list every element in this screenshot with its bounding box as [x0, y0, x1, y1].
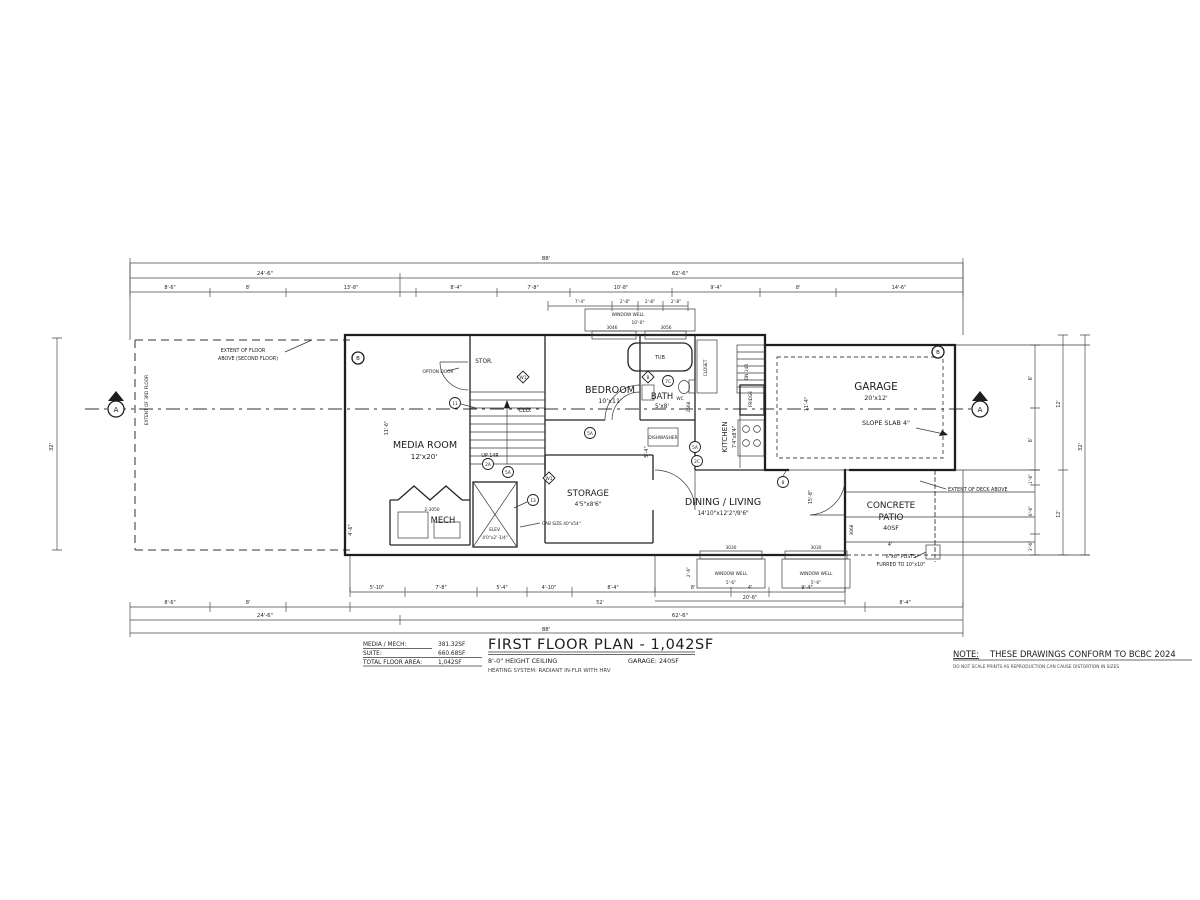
section-marker-a-left: A [114, 405, 119, 414]
dim-right-12a: 12' [1056, 400, 1062, 407]
note-title: NOTE: [953, 649, 979, 659]
dim-top3-4: 7'-8" [527, 285, 538, 291]
dim-top3-2: 13'-8" [344, 285, 358, 291]
stairs-down [737, 345, 765, 393]
label-posts-1: 6"x6" POSTS [886, 554, 917, 560]
area-row3-value: 1,042SF [438, 660, 462, 666]
label-fridge: FRIDGE [748, 391, 754, 407]
keynote-5a-2: 5A [587, 431, 593, 437]
label-win-3030-a: 3030 [726, 545, 737, 551]
label-win-3046: 3046 [607, 325, 618, 331]
dim-top4-1: 2'-8" [620, 299, 630, 305]
room-label-mech: MECH [431, 515, 456, 525]
dim-bot2-0: 8'-6" [164, 600, 175, 606]
label-extent-second-2: ABOVE (SECOND FLOOR) [218, 356, 278, 362]
dim-right-0: 6' [1028, 376, 1034, 380]
dim-bot-left: 24'-6" [257, 613, 273, 619]
room-label-stor: STOR. [475, 359, 493, 365]
room-label-patio-1: CONCRETE [867, 501, 915, 511]
dimension-lines [52, 258, 1090, 637]
area-row1-label: MEDIA / MECH: [363, 642, 407, 648]
dim-d158: 15'-8" [808, 490, 814, 504]
dim-bot1r-0: 8' [691, 585, 695, 591]
room-label-clo: CLO. [518, 408, 531, 414]
dim-top-total: 88' [542, 256, 550, 262]
room-size-storage: 4'5"x8'6" [575, 502, 602, 508]
keynote-8: 8 [782, 480, 785, 486]
label-extent-second-1: EXTENT OF FLOOR [221, 348, 266, 354]
area-row2-value: 660.68SF [438, 651, 465, 657]
label-window-well-b1: WINDOW WELL [715, 571, 748, 577]
room-size-garage: 20'x12' [864, 394, 888, 402]
dim-bot1-1: 7'-8" [435, 585, 446, 591]
dim-right-4: 3'-6" [1028, 541, 1034, 551]
keynote-13: 13 [530, 498, 536, 504]
sheet-subtitle-left: 8'-0" HEIGHT CEILING [488, 657, 557, 665]
dim-window-well-top: 10'-0" [632, 320, 645, 326]
room-label-media: MEDIA ROOM [393, 440, 457, 451]
dim-top4-2: 2'-8" [645, 299, 655, 305]
area-row3-label: TOTAL FLOOR AREA: [362, 660, 422, 666]
dim-top-left: 24'-6" [257, 271, 273, 277]
label-mech-window: 2-3050 [424, 507, 439, 513]
dim-bot1-0: 5'-10" [370, 585, 384, 591]
dim-well-depth: 2'-6" [686, 567, 692, 577]
room-label-storage: STORAGE [567, 489, 609, 499]
keynote-11: 11 [452, 401, 458, 407]
label-closet: CLOSET [703, 359, 709, 376]
patio-elements [285, 340, 948, 559]
dim-bot2-1: 8' [246, 600, 250, 606]
dim-right-total: 32' [1078, 443, 1084, 451]
dim-top3-8: 14'-6" [892, 285, 906, 291]
label-wc: WC [676, 396, 683, 402]
floor-plan-drawing: 88' 24'-6" 62'-6" 8'-6" 8' 13'-8" 8'-4" … [0, 0, 1200, 900]
dim-top3-7: 8' [796, 285, 800, 291]
label-elev-cab: CAB SIZE 40"x54" [542, 521, 581, 527]
area-row2-label: SUITE: [363, 651, 382, 657]
keynote-5a-3: 5A [692, 445, 698, 451]
label-dishwasher: DISHWASHER [648, 435, 677, 441]
dim-bot1r-2: 9'-4" [801, 585, 812, 591]
dim-top3-6: 9'-4" [710, 285, 721, 291]
dim-garage-height: 11'-4" [804, 397, 810, 411]
dim-top3-3: 8'-4" [450, 285, 461, 291]
window-tag-w1-b: W1 [546, 476, 553, 482]
room-label-patio-2: PATIO [879, 513, 904, 523]
window-tag-w1-a: W1 [520, 375, 527, 381]
dim-bot1-3: 4'-10" [542, 585, 556, 591]
dim-d54: 5'-4" [644, 446, 650, 457]
label-door-2668: 2668 [686, 401, 692, 412]
sheet-subtitle-right: GARAGE: 240SF [628, 657, 679, 665]
room-size-patio: 40SF [883, 524, 899, 532]
room-size-dining: 14'10"x12'2"/9'6" [697, 511, 749, 517]
room-label-garage: GARAGE [854, 381, 898, 393]
dim-top4-0: 7'-4" [575, 299, 585, 305]
dim-top3-1: 8' [246, 285, 250, 291]
dim-bot2-3: 8'-4" [899, 600, 910, 606]
label-tub: TUB [654, 355, 665, 361]
label-elev-2: 4'0"x2'-1/4" [482, 535, 508, 541]
label-door-3068: 3068 [849, 524, 855, 535]
label-option-door: OPTION DOOR [423, 369, 454, 375]
dim-media-height: 11'-6" [384, 421, 390, 435]
dim-top3-0: 8'-6" [164, 285, 175, 291]
dim-bot-right: 62'-6" [672, 613, 688, 619]
section-marker-b-right: B [936, 350, 940, 356]
label-win-3056: 3056 [661, 325, 672, 331]
section-marker-a-right: A [978, 405, 983, 414]
dim-d46: 4'-6" [348, 524, 354, 535]
dim-bot2-2: 52' [596, 600, 603, 606]
section-marker-b-left: B [356, 356, 360, 362]
label-win-3030-b: 3030 [811, 545, 822, 551]
dim-right-1: 6' [1028, 438, 1034, 442]
dim-right-2: 1'-6" [1028, 474, 1034, 484]
room-label-bedroom: BEDROOM [585, 385, 635, 396]
dim-top4-3: 2'-8" [671, 299, 681, 305]
label-window-well-top: WINDOW WELL [612, 312, 645, 318]
keynote-2a: 2A [485, 462, 491, 468]
room-size-kitchen: 7'4"x8'4" [732, 426, 738, 448]
area-row1-value: 381.32SF [438, 642, 465, 648]
dim-top3-5: 10'-8" [614, 285, 628, 291]
label-stairs-up: UP 14R [481, 453, 499, 459]
dim-bot1-2: 5'-4" [496, 585, 507, 591]
dim-bot1r-total: 20'-6" [743, 595, 757, 601]
dining-window-wells [697, 551, 850, 588]
dim-well-width-a: 5'-6" [726, 580, 736, 586]
dim-right-3: 6'-6" [1028, 506, 1034, 516]
label-window-well-b2: WINDOW WELL [800, 571, 833, 577]
sheet-subtitle-bottom: HEATING SYSTEM: RADIANT IN-FLR WITH HRV [488, 668, 611, 674]
floor-plan-sheet: 88' 24'-6" 62'-6" 8'-6" 8' 13'-8" 8'-4" … [0, 0, 1200, 900]
dim-right-12b: 12' [1056, 510, 1062, 517]
keynote-5a-1: 5A [505, 470, 511, 476]
dim-bot1r-1: 4' [748, 585, 752, 591]
dim-patio-4: 4' [888, 542, 892, 548]
label-slope-slab: SLOPE SLAB 4" [862, 419, 910, 427]
room-label-kitchen: KITCHEN [720, 421, 729, 452]
dim-top-right: 62'-6" [672, 271, 688, 277]
keynote-2c: 2C [694, 459, 700, 465]
dim-bot-total: 88' [542, 627, 550, 633]
room-size-bath: 5'x8' [655, 404, 669, 410]
label-extent-third: EXTENT OF 3RD FLOOR [144, 375, 150, 425]
note-subtext: DO NOT SCALE PRINTS AS REPRODUCTION CAN … [953, 664, 1119, 670]
label-extent-deck: EXTENT OF DECK ABOVE [948, 487, 1008, 493]
sheet-title: FIRST FLOOR PLAN - 1,042SF [488, 637, 714, 653]
room-size-media: 12'x20' [411, 452, 438, 461]
room-label-bath: BATH [651, 391, 673, 401]
label-posts-2: FURRED TO 10"x10" [877, 562, 926, 568]
note-text: THESE DRAWINGS CONFORM TO BCBC 2024 [989, 649, 1176, 659]
label-elev-1: ELEV. [489, 527, 501, 533]
dim-bot1-4: 8'-4" [607, 585, 618, 591]
fixture-tag-b: B [647, 375, 650, 381]
label-stairs-down: DN 14R [744, 364, 750, 380]
dim-left-total: 32' [49, 443, 55, 451]
room-label-dining: DINING / LIVING [685, 497, 761, 508]
keynote-7c: 7C [665, 379, 671, 385]
room-size-bedroom: 10'x11' [598, 397, 622, 405]
